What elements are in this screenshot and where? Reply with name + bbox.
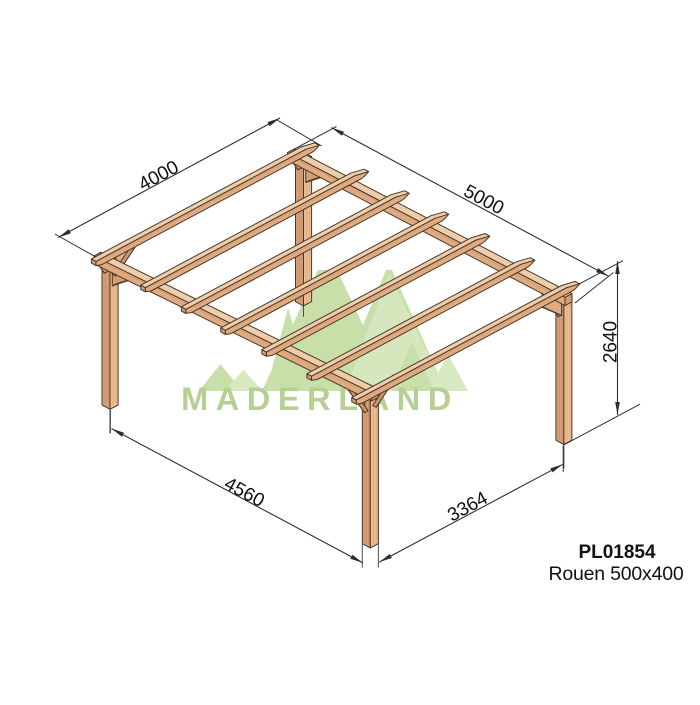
svg-text:PL01854: PL01854	[578, 542, 656, 563]
svg-text:MADERLAND: MADERLAND	[181, 381, 459, 417]
svg-text:Rouen 500x400: Rouen 500x400	[548, 563, 683, 585]
svg-text:2640: 2640	[601, 321, 622, 363]
